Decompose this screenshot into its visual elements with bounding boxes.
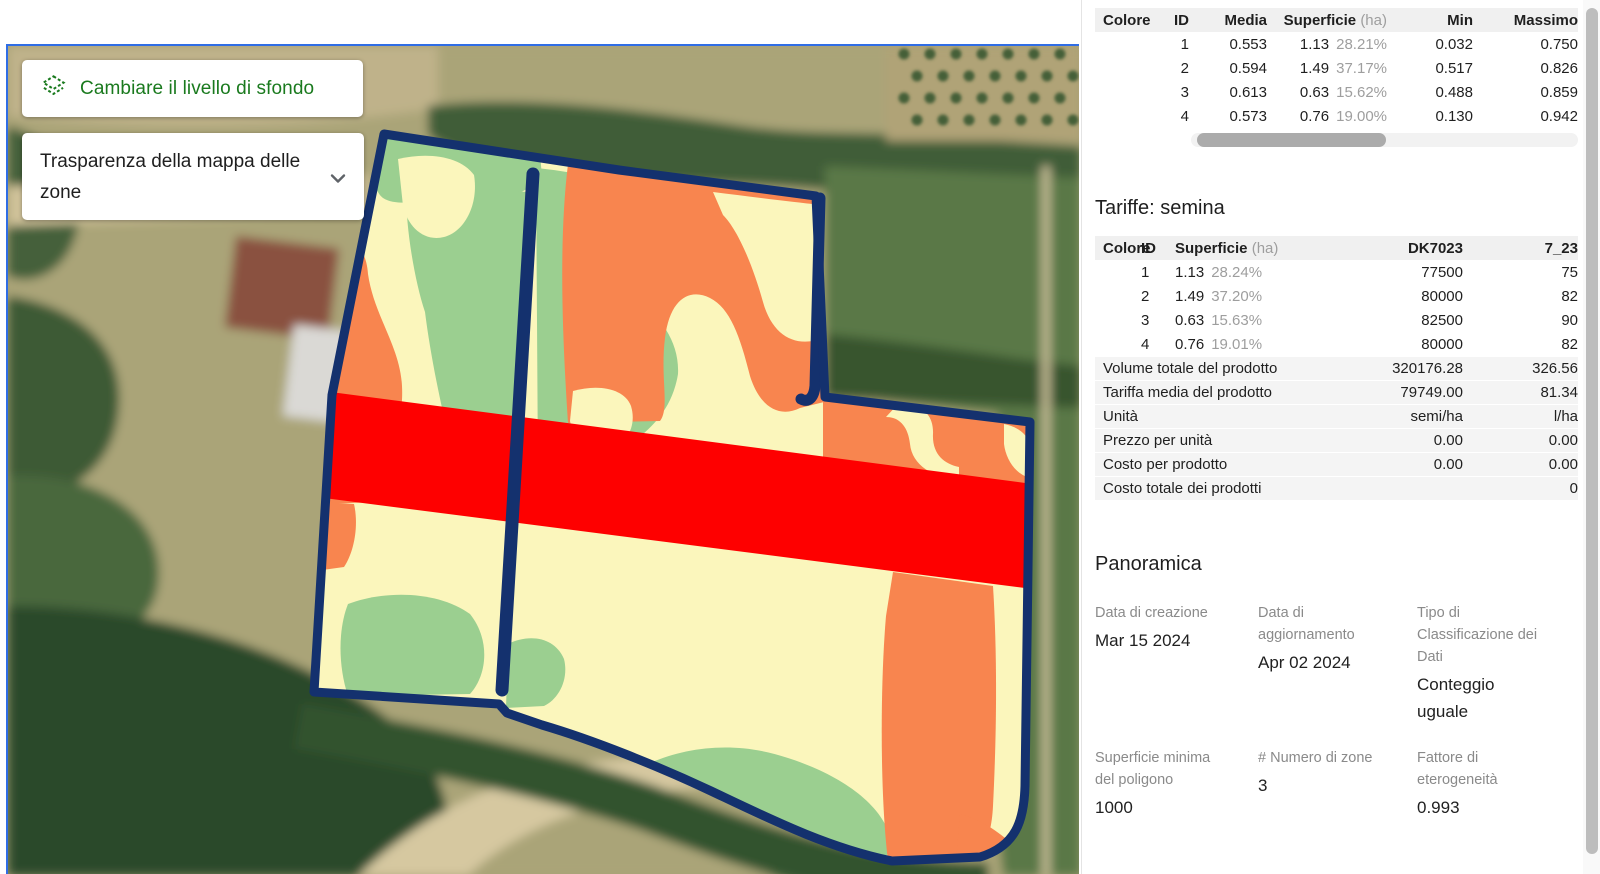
chevron-down-icon <box>326 166 350 195</box>
summary-row: Costo totale dei prodotti 0 <box>1095 476 1578 500</box>
panoramica-item: Tipo di Classificazione dei Dati Contegg… <box>1417 602 1578 725</box>
panoramica-item: # Numero di zone 3 <box>1258 747 1417 799</box>
tariffe-title: Tariffe: semina <box>1095 197 1577 220</box>
summary-row: Costo per prodotto 0.00 0.00 <box>1095 452 1578 476</box>
zones-table: Colore ID Media Superficie (ha) Min Mass… <box>1095 8 1578 128</box>
table-row: 4 0.573 0.7619.00% 0.130 0.942 <box>1095 104 1578 128</box>
table-row: 2 0.594 1.4937.17% 0.517 0.826 <box>1095 56 1578 80</box>
panoramica-title: Panoramica <box>1095 553 1577 576</box>
table-row: 2 1.4937.20% 80000 82 <box>1095 284 1578 308</box>
change-background-label: Cambiare il livello di sfondo <box>80 78 314 100</box>
panel-scrollbar-thumb[interactable] <box>1586 8 1598 854</box>
summary-row: Unità semi/ha l/ha <box>1095 404 1578 428</box>
zone-transparency-label: Trasparenza della mappa delle zone <box>40 146 316 208</box>
table-horizontal-scrollbar[interactable] <box>1191 133 1578 147</box>
table-row: 3 0.6315.63% 82500 90 <box>1095 308 1578 332</box>
col-colore: Colore <box>1095 12 1153 29</box>
panoramica-grid: Data di creazione Mar 15 2024 Data di ag… <box>1095 602 1577 821</box>
panoramica-item: Data di aggiornamento Apr 02 2024 <box>1258 602 1417 676</box>
zone-transparency-dropdown[interactable]: Trasparenza della mappa delle zone <box>22 133 364 220</box>
scrollbar-thumb[interactable] <box>1197 133 1386 147</box>
col-superficie: Superficie (ha) <box>1175 240 1323 257</box>
col-superficie: Superficie (ha) <box>1267 12 1387 29</box>
tariffe-table: Colore ID Superficie (ha) DK7023 7_23 1 … <box>1095 236 1578 500</box>
zones-table-header: Colore ID Media Superficie (ha) Min Mass… <box>1095 8 1578 32</box>
col-massimo: Massimo <box>1473 12 1578 29</box>
col-product1: DK7023 <box>1323 240 1463 257</box>
summary-row: Prezzo per unità 0.00 0.00 <box>1095 428 1578 452</box>
col-colore: Colore <box>1095 240 1141 257</box>
col-min: Min <box>1387 12 1473 29</box>
details-panel: Colore ID Media Superficie (ha) Min Mass… <box>1081 0 1600 874</box>
tariffe-table-header: Colore ID Superficie (ha) DK7023 7_23 <box>1095 236 1578 260</box>
table-row: 1 1.1328.24% 77500 75 <box>1095 260 1578 284</box>
col-product2: 7_23 <box>1463 240 1578 257</box>
summary-row: Tariffa media del prodotto 79749.00 81.3… <box>1095 380 1578 404</box>
table-row: 4 0.7619.01% 80000 82 <box>1095 332 1578 356</box>
table-row: 3 0.613 0.6315.62% 0.488 0.859 <box>1095 80 1578 104</box>
layers-icon <box>40 73 67 105</box>
panel-scrollbar-track[interactable] <box>1583 0 1600 874</box>
table-row: 1 0.553 1.1328.21% 0.032 0.750 <box>1095 32 1578 56</box>
col-media: Media <box>1189 12 1267 29</box>
panoramica-item: Data di creazione Mar 15 2024 <box>1095 602 1258 654</box>
panoramica-item: Fattore di eterogeneità 0.993 <box>1417 747 1578 821</box>
col-id: ID <box>1153 12 1189 29</box>
panoramica-item: Superficie minima del poligono 1000 <box>1095 747 1258 821</box>
col-id: ID <box>1141 240 1175 257</box>
summary-row: Volume totale del prodotto 320176.28 326… <box>1095 356 1578 380</box>
change-background-button[interactable]: Cambiare il livello di sfondo <box>22 60 363 117</box>
